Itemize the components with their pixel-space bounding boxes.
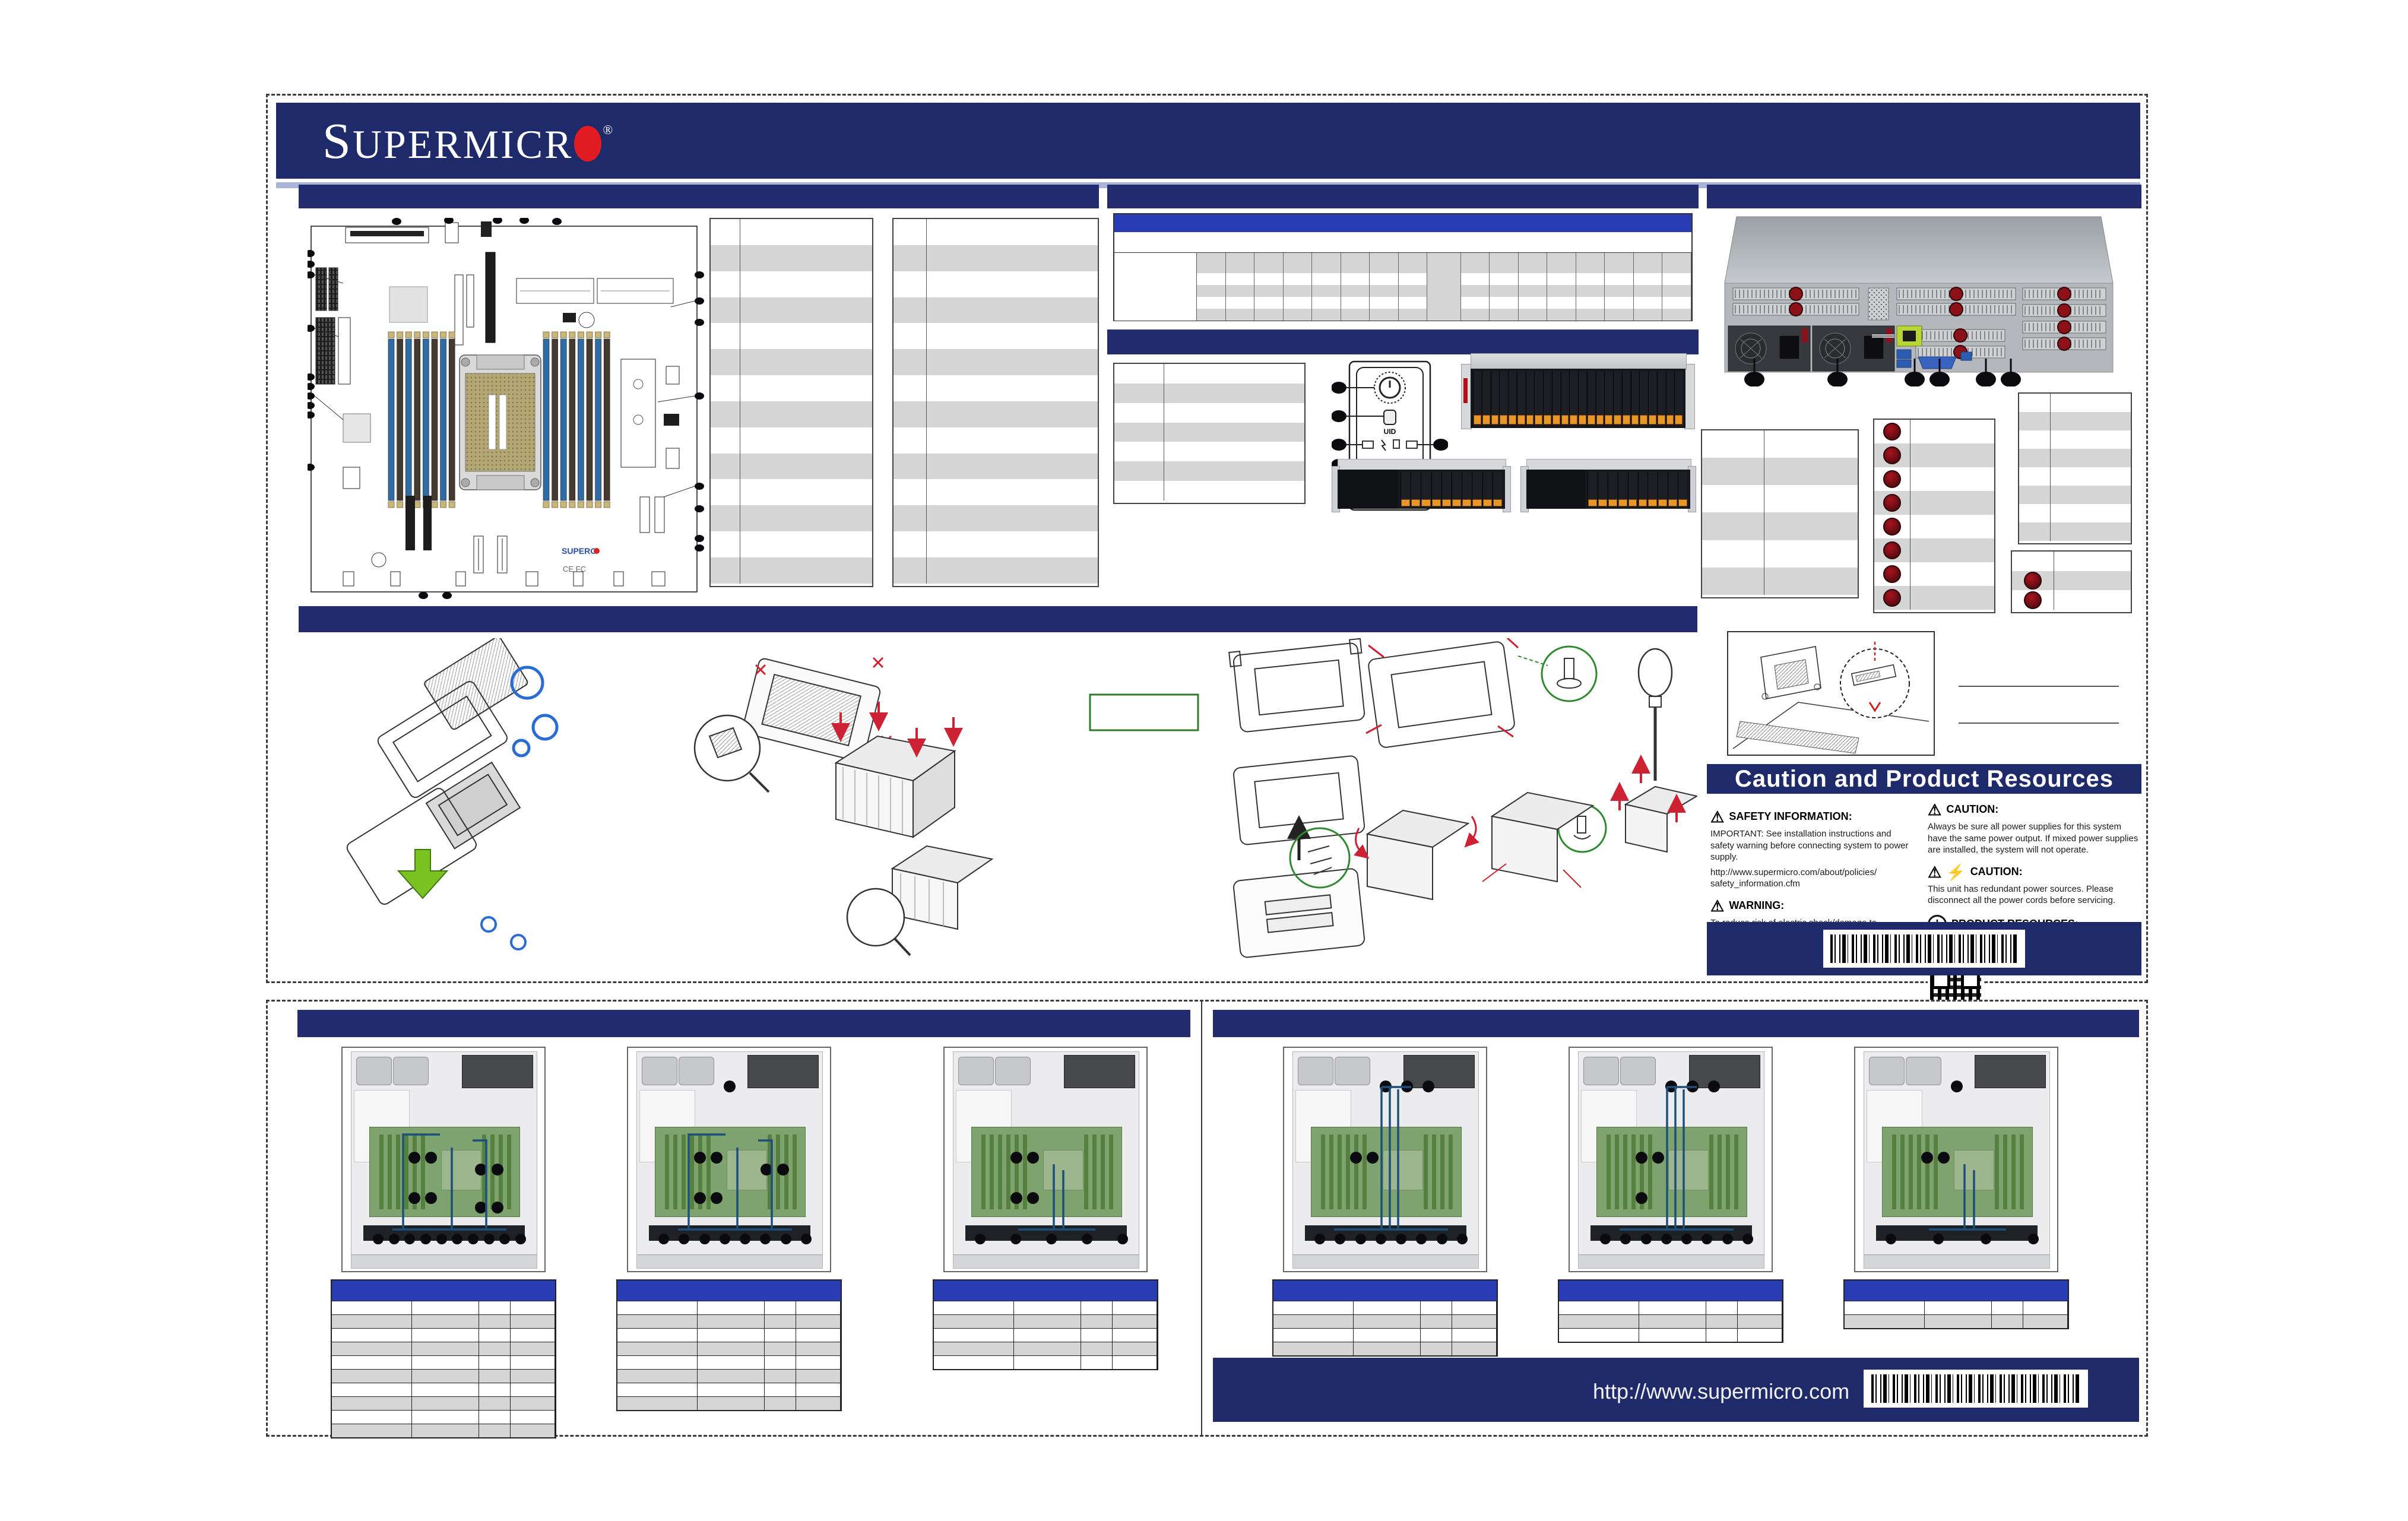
cable-diagram-6 (1854, 1047, 2058, 1272)
table-row (894, 479, 1098, 505)
logo-text: UPERMICR (353, 122, 574, 167)
table-row (2019, 430, 2131, 449)
table-row (617, 1396, 841, 1410)
table-row (1702, 512, 1858, 540)
cable-table-6 (1843, 1279, 2069, 1329)
table-row (894, 505, 1098, 531)
table-row (332, 1314, 555, 1328)
usb-ports (1897, 350, 1911, 359)
table-row (1874, 420, 1994, 443)
table-row (894, 297, 1098, 324)
caution2-heading: ⚠⚡CAUTION: (1928, 864, 2139, 880)
table-row (711, 271, 872, 297)
table-row (711, 323, 872, 349)
bottom-sheet: http://www.supermicro.com (266, 1000, 2148, 1437)
section-bar-motherboard (299, 185, 1099, 208)
electric-shock-icon: ⚡ (1946, 864, 1965, 880)
table-row (711, 505, 872, 531)
table-row (2019, 522, 2131, 541)
warning-triangle-icon: ⚠ (1710, 809, 1724, 825)
server-front-24bay (1461, 353, 1695, 432)
table-row (1702, 458, 1858, 485)
safety-text-block: ⚠SAFETY INFORMATION: IMPORTANT: See inst… (1710, 801, 2139, 917)
cable-diagram-3 (943, 1047, 1148, 1272)
table-row (1845, 1301, 2068, 1314)
vga-port (1918, 357, 1956, 369)
table-row (894, 349, 1098, 375)
cable-diagram-2 (627, 1047, 831, 1272)
locking-bar (1463, 378, 1468, 403)
table-row (1874, 491, 1994, 515)
callout-red-dot (2024, 591, 2042, 609)
top-barcode-bar (1707, 922, 2141, 975)
table-row (1273, 1301, 1497, 1314)
table-row (617, 1369, 841, 1383)
table-row (894, 427, 1098, 454)
table-row (1559, 1328, 1782, 1342)
table-row (711, 297, 872, 324)
safety-col-right: ⚠CAUTION: Always be sure all power suppl… (1928, 801, 2139, 917)
board-silkscreen-marks: CE FC (563, 565, 586, 573)
table-row (2019, 486, 2131, 504)
callout-red-dot (2024, 572, 2042, 590)
table-row (2019, 449, 2131, 467)
footer-barcode (1871, 1374, 2080, 1403)
table-row (2012, 571, 2131, 591)
table-row (1702, 568, 1858, 595)
table-row (1114, 384, 1304, 403)
cable-route (758, 1140, 772, 1230)
table-row (711, 401, 872, 427)
table-row (617, 1328, 841, 1342)
table-row (332, 1301, 555, 1314)
rear-table-1 (1701, 429, 1859, 598)
table-row (1114, 461, 1304, 481)
table-row (2019, 504, 2131, 522)
cpu-install-illustrations (299, 638, 1697, 974)
table-row (894, 323, 1098, 349)
table-row (332, 1369, 555, 1383)
server-front-2u-right (1520, 459, 1696, 514)
heatsink-secure-illustration (1290, 793, 1593, 899)
rear-table-3 (2018, 392, 2132, 544)
table-row (1874, 443, 1994, 467)
safety-col-left: ⚠SAFETY INFORMATION: IMPORTANT: See inst… (1710, 801, 1912, 917)
rear-table-4 (2011, 550, 2132, 613)
caution-banner: Caution and Product Resources (1707, 764, 2141, 794)
section-bar-rear (1707, 185, 2141, 208)
dimm-body-row (1114, 309, 1691, 321)
table-row (1874, 467, 1994, 491)
cable-table-2 (616, 1279, 842, 1411)
table-row (2019, 412, 2131, 430)
top-sheet: SUPERMICR® (266, 94, 2148, 983)
cable-group-bar-right (1213, 1010, 2139, 1037)
table-row (894, 557, 1098, 584)
table-row (934, 1314, 1157, 1328)
section-bar-configuration (1107, 185, 1699, 208)
table-row (934, 1301, 1157, 1314)
table-header (1559, 1281, 1782, 1301)
table-row (332, 1410, 555, 1424)
table-row (1273, 1328, 1497, 1342)
caption-line-1 (1959, 686, 2119, 687)
supermicro-logo: SUPERMICR® (322, 111, 614, 170)
table-row (332, 1396, 555, 1410)
barcode (1830, 934, 2018, 963)
caption-line-2 (1959, 723, 2119, 724)
uid-button: UID (1384, 410, 1396, 436)
table-row (617, 1342, 841, 1355)
table-row (1702, 485, 1858, 512)
safety-info-url: http://www.supermicro.com/about/policies… (1710, 867, 1912, 890)
table-row (894, 219, 1098, 245)
callout-red-dot (1883, 494, 1901, 512)
table-row (894, 531, 1098, 557)
table-row (2019, 394, 2131, 412)
table-row (894, 454, 1098, 480)
table-row (2012, 590, 2131, 610)
table-row (1114, 403, 1304, 423)
supermicro-url: http://www.supermicro.com (1593, 1379, 1849, 1404)
table-row (1559, 1314, 1782, 1328)
empty-label-box (1090, 695, 1198, 730)
table-row (1114, 364, 1304, 384)
table-row (617, 1383, 841, 1396)
caution1-body: Always be sure all power supplies for th… (1928, 821, 2139, 856)
front-panel-table (1113, 363, 1306, 504)
logo-red-o-icon (574, 126, 601, 161)
table-header (934, 1281, 1157, 1301)
table-row (1702, 430, 1858, 458)
riser-illustration (1727, 631, 1935, 756)
dimm-table-header (1114, 214, 1691, 232)
section-bar-front-panel (1107, 329, 1699, 354)
table-row (1874, 586, 1994, 610)
callout-red-dot (1883, 589, 1901, 607)
table-header (1273, 1281, 1497, 1301)
table-row (711, 349, 872, 375)
cable-table-4 (1272, 1279, 1498, 1357)
caution-banner-title: Caution and Product Resources (1735, 766, 2114, 793)
motherboard-layout-diagram: SUPERO CE FC (308, 218, 704, 599)
table-row (934, 1355, 1157, 1369)
table-row (1273, 1314, 1497, 1328)
table-row (894, 271, 1098, 297)
table-row (711, 557, 872, 584)
table-row (2019, 467, 2131, 486)
cable-group-bar-left (297, 1010, 1190, 1037)
table-row (1702, 540, 1858, 568)
cable-route (403, 1135, 440, 1230)
rear-table-2 (1873, 419, 1995, 613)
table-row (617, 1314, 841, 1328)
cable-table-3 (933, 1279, 1158, 1370)
table-row (332, 1328, 555, 1342)
quick-reference-poster: SUPERMICR® (0, 0, 2408, 1521)
table-row (894, 375, 1098, 401)
warning-triangle-icon: ⚠ (1928, 802, 1941, 817)
table-row (711, 375, 872, 401)
cable-table-5 (1558, 1279, 1783, 1343)
table-row (332, 1342, 555, 1355)
logo-band: SUPERMICR® (276, 103, 2140, 179)
table-row (332, 1424, 555, 1437)
dimm-body-row (1114, 273, 1691, 285)
callout-red-dot (1883, 518, 1901, 535)
jumper-table-b (892, 218, 1099, 587)
dimm-body-row (1114, 285, 1691, 297)
footer-url-bar: http://www.supermicro.com (1213, 1358, 2139, 1422)
cable-diagram-1 (341, 1047, 546, 1272)
callout-red-dot (1883, 541, 1901, 559)
cpu-carrier-exploded-illustration (345, 638, 557, 949)
table-row (894, 401, 1098, 427)
server-front-2u-left (1332, 459, 1511, 514)
safety-info-body: IMPORTANT: See installation instructions… (1710, 828, 1912, 863)
table-row (332, 1383, 555, 1396)
table-row (1874, 562, 1994, 586)
callout-red-dot (1883, 470, 1901, 488)
table-row (711, 479, 872, 505)
dimm-col-header-row (1114, 253, 1691, 273)
table-row (1874, 515, 1994, 538)
registered-mark: ® (603, 122, 614, 137)
table-row (1273, 1342, 1497, 1355)
board-silkscreen-brand: SUPERO (562, 546, 597, 556)
jumper-table-a (709, 218, 873, 587)
table-header (617, 1281, 841, 1301)
warning-heading: ⚠WARNING: (1710, 898, 1912, 914)
table-row (711, 531, 872, 557)
table-row (2012, 552, 2131, 571)
socket-frames-illustration (1229, 639, 1368, 958)
torque-tool-illustration (1620, 649, 1697, 852)
table-row (934, 1328, 1157, 1342)
caution2-body: This unit has redundant power sources. P… (1928, 883, 2139, 907)
cpu-socket (460, 355, 541, 490)
callout-red-dot (1883, 565, 1901, 583)
warning-triangle-icon: ⚠ (1710, 898, 1724, 914)
table-row (332, 1355, 555, 1369)
table-row (1559, 1301, 1782, 1314)
cable-table-1 (331, 1279, 556, 1438)
caution1-heading: ⚠CAUTION: (1928, 802, 2139, 817)
table-row (1874, 538, 1994, 562)
table-header (332, 1281, 555, 1301)
dimm-config-table (1113, 213, 1693, 321)
table-row (1114, 423, 1304, 442)
callout-red-dot (1883, 446, 1901, 464)
warning-triangle-icon: ⚠ (1928, 864, 1941, 880)
table-row (1114, 481, 1304, 500)
table-row (711, 245, 872, 271)
table-row (934, 1342, 1157, 1355)
cable-route (689, 1135, 725, 1230)
table-row (711, 219, 872, 245)
group-divider (1201, 1002, 1202, 1435)
table-row (894, 245, 1098, 271)
table-row (617, 1301, 841, 1314)
cable-route (473, 1140, 486, 1230)
callout-red-dot (1883, 423, 1901, 441)
rear-view-illustration (1719, 213, 2119, 386)
table-row (1845, 1314, 2068, 1328)
table-row (1114, 442, 1304, 461)
table-header (1845, 1281, 2068, 1301)
logo-text-initial: S (322, 112, 353, 169)
table-row (617, 1355, 841, 1369)
cable-diagram-4 (1283, 1047, 1487, 1272)
svg-text:UID: UID (1384, 427, 1396, 436)
heatsink-magnifier-illustration (847, 846, 992, 955)
cable-diagram-5 (1569, 1047, 1773, 1272)
safety-info-heading: ⚠SAFETY INFORMATION: (1710, 809, 1912, 825)
section-bar-cpu-install (299, 606, 1697, 632)
table-row (711, 454, 872, 480)
table-row (711, 427, 872, 454)
dimm-body-row (1114, 297, 1691, 309)
